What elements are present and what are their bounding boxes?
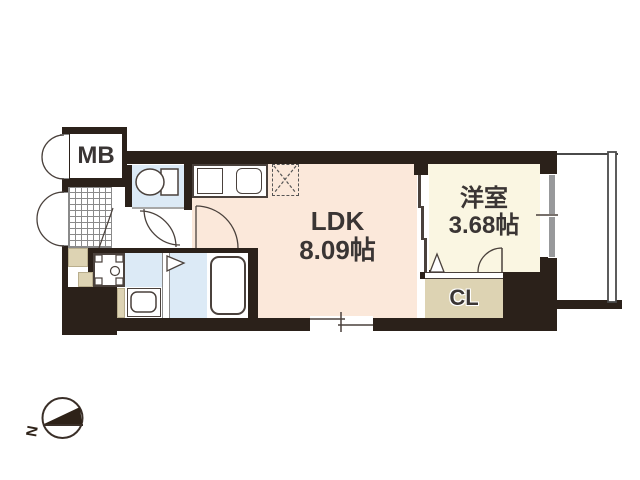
meter-box-door-arc-upper xyxy=(42,135,64,157)
closet-folding-door-icon xyxy=(430,254,444,272)
floor-plan: N MB LDK 8.09帖 洋室 3.68帖 CL xyxy=(0,0,640,480)
western-room-area: 3.68帖 xyxy=(449,213,520,240)
west-room-door-arc xyxy=(478,248,502,272)
washroom-door-arc xyxy=(140,211,176,247)
compass: N xyxy=(23,398,83,438)
entrance-door-arc-upper xyxy=(37,192,64,219)
meter-box-door-arc-lower xyxy=(42,157,64,179)
compass-north-label: N xyxy=(23,424,42,438)
ldk-name: LDK xyxy=(311,207,364,236)
ldk-area: 8.09帖 xyxy=(299,236,376,265)
western-room-name: 洋室 xyxy=(460,186,508,213)
balcony-railing xyxy=(608,152,616,302)
ldk-door-arc xyxy=(196,206,238,248)
ldk-label: LDK 8.09帖 xyxy=(255,205,420,267)
meter-box-label: MB xyxy=(70,134,122,178)
western-room-label: 洋室 3.68帖 xyxy=(428,182,540,244)
entrance-step-line xyxy=(99,208,113,248)
meter-box-text: MB xyxy=(77,143,114,170)
entrance-door-arc-lower xyxy=(37,219,64,246)
closet-text: CL xyxy=(449,286,478,311)
toilet-door-arc xyxy=(144,209,180,245)
closet-label: CL xyxy=(425,281,503,316)
bath-folding-door-icon xyxy=(167,256,184,271)
compass-needle xyxy=(44,407,82,424)
